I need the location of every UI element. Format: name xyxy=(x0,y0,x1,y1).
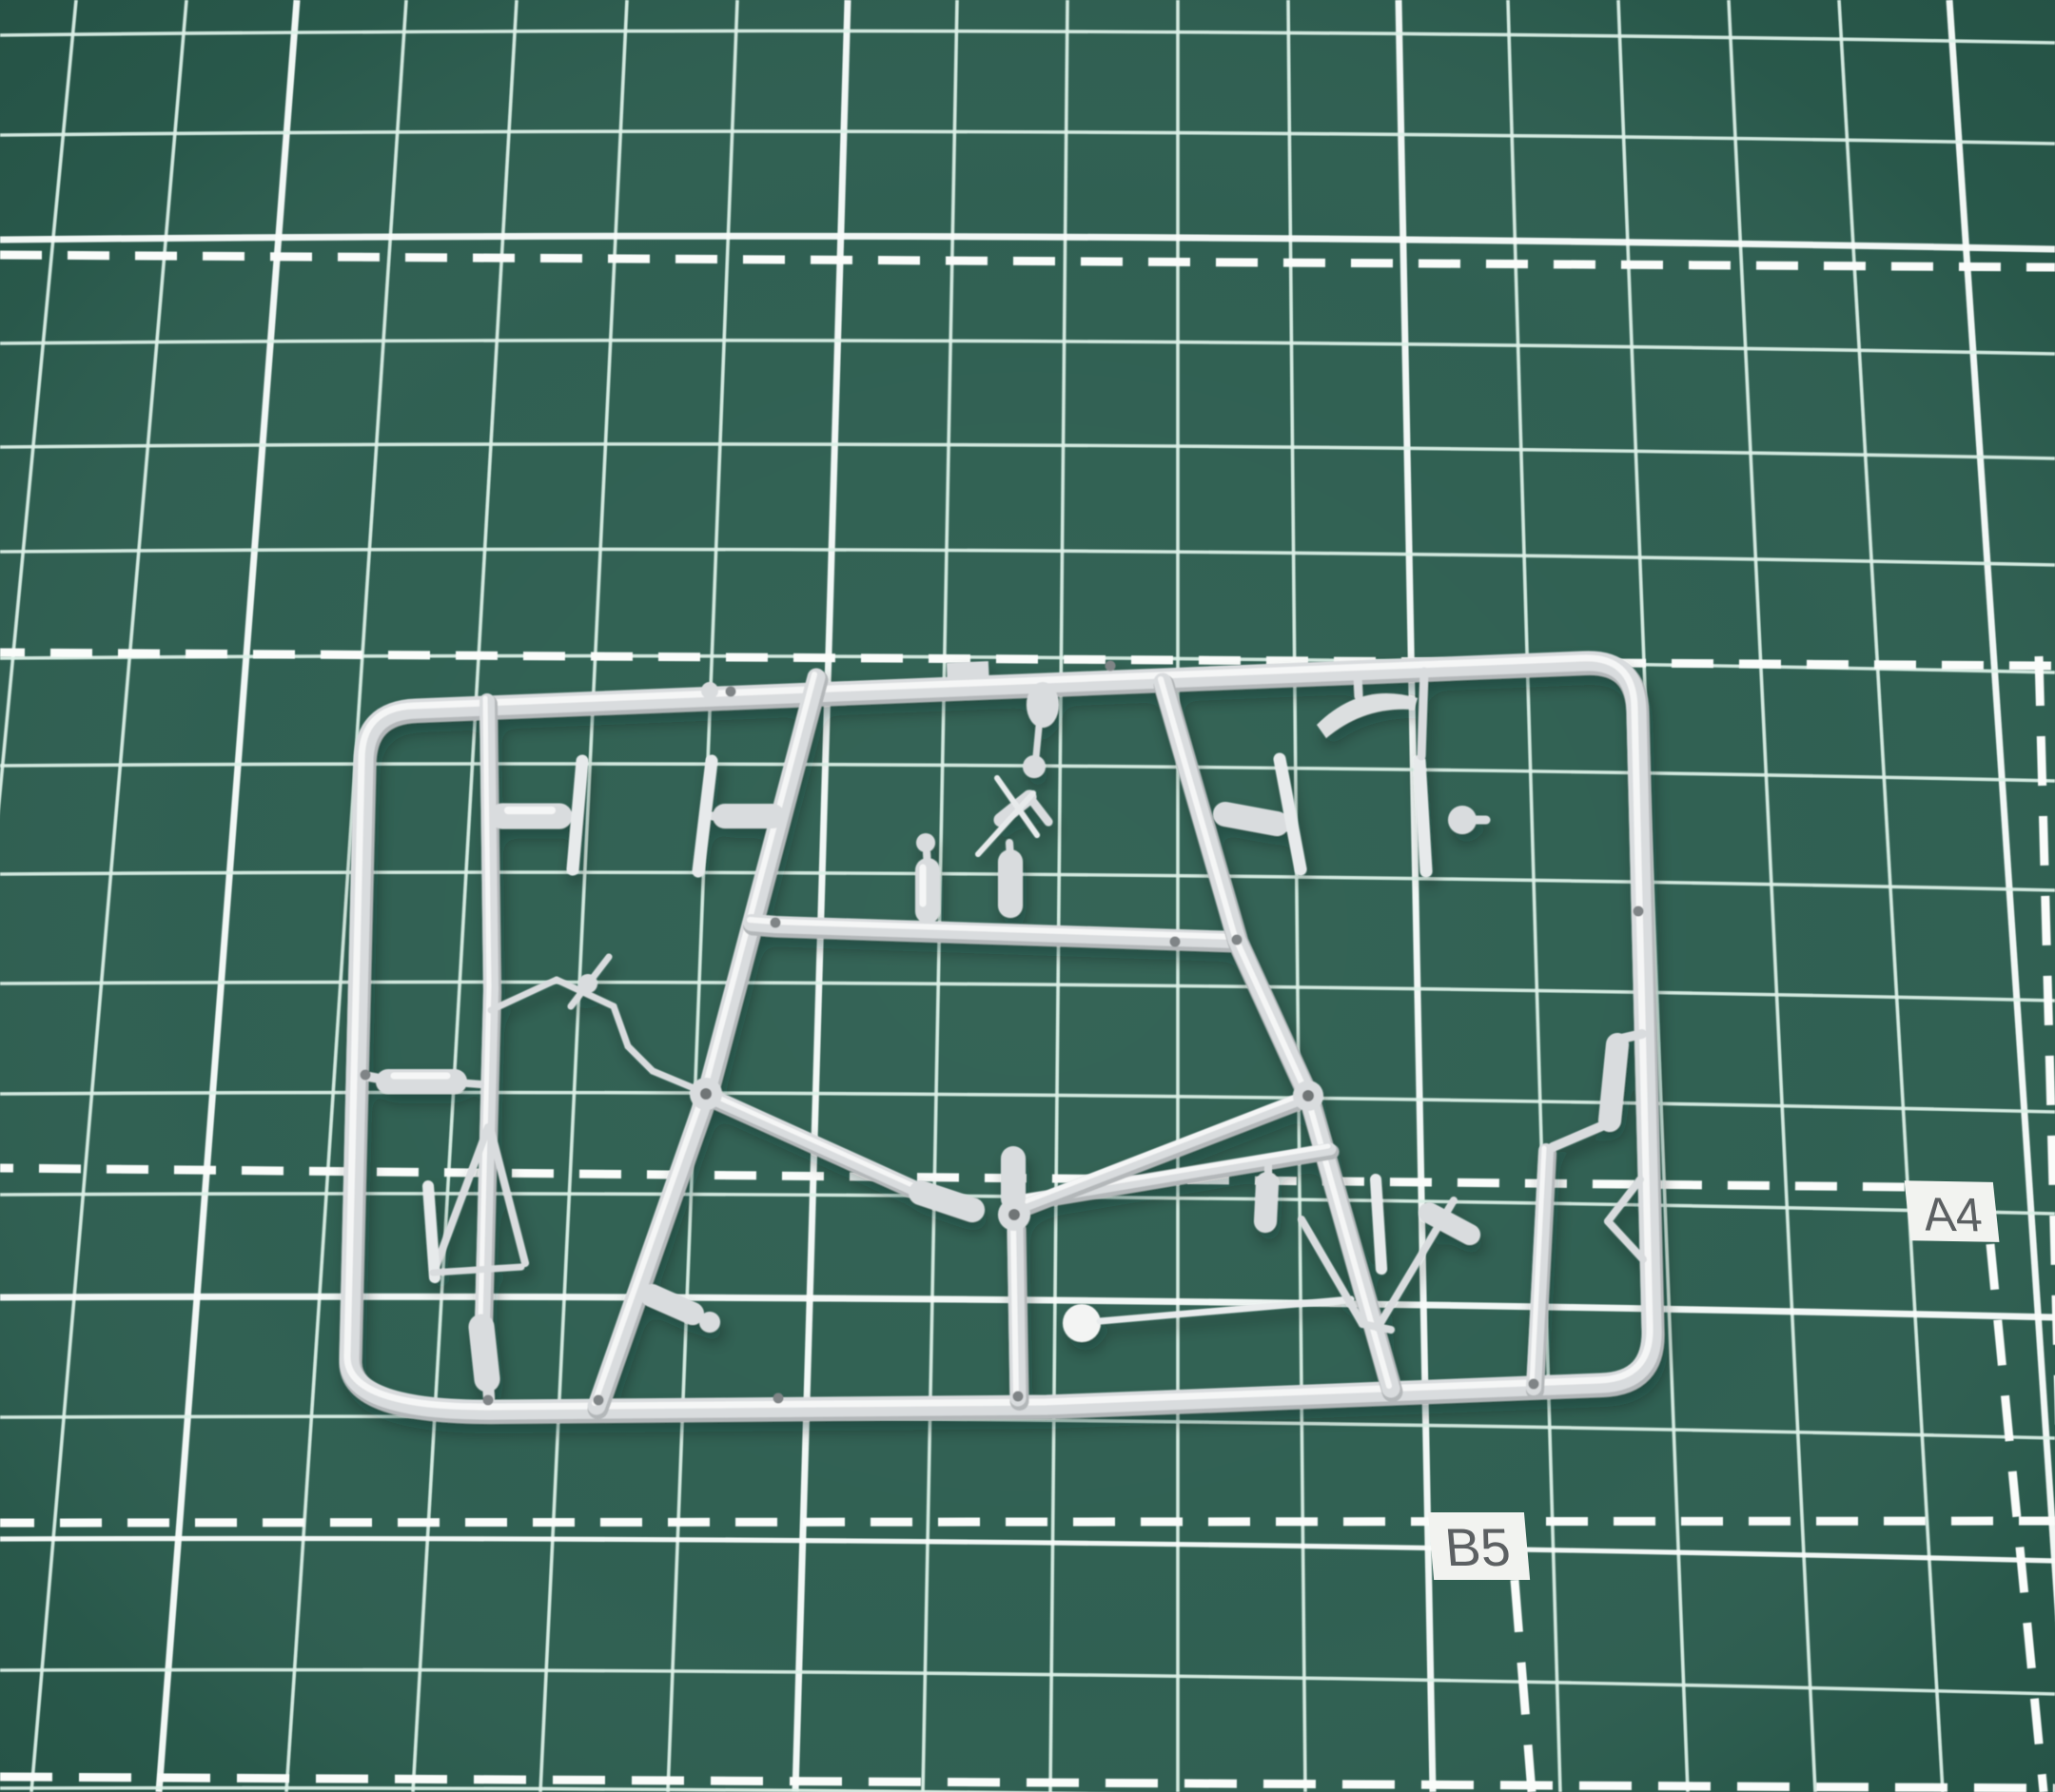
svg-text:B5: B5 xyxy=(1442,1517,1513,1577)
svg-text:A4: A4 xyxy=(1921,1188,1985,1242)
